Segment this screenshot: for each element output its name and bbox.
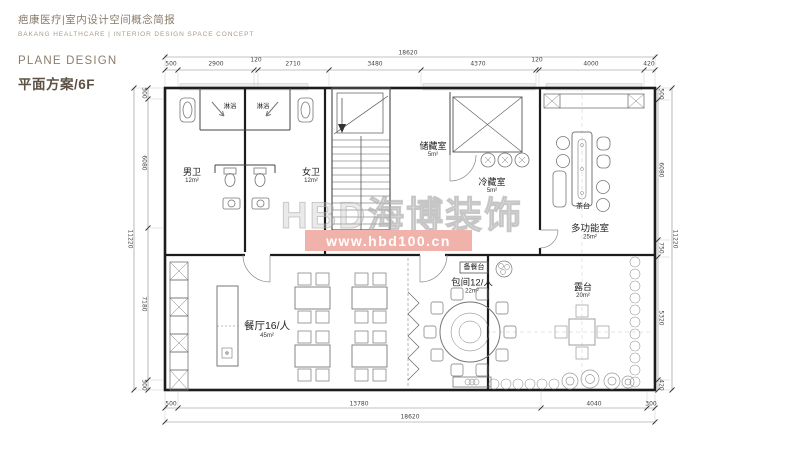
dim-left-seg: 500 — [141, 87, 148, 98]
dim-left-seg: 500 — [141, 379, 148, 390]
room-label-multifunction: 多功能室25m² — [571, 224, 609, 243]
dim-top-seg: 120 — [531, 57, 542, 64]
header-title-cn: 疤康医疗|室内设计空间概念简报 — [18, 12, 254, 27]
dim-right-total: 11220 — [672, 229, 679, 248]
dim-right-seg: 500 — [658, 88, 665, 99]
room-label-mens-wc: 男卫12m² — [183, 167, 201, 185]
dim-top-seg: 2710 — [285, 61, 300, 68]
room-label-dining: 餐厅16/人45m² — [244, 320, 290, 340]
terrace-furniture — [489, 257, 640, 389]
room-label-cold-storage: 冷藏室5m² — [478, 177, 505, 195]
dim-top-seg: 120 — [250, 57, 261, 64]
dim-top-seg: 2900 — [208, 61, 223, 68]
dim-top-seg: 4000 — [583, 61, 598, 68]
void-hatch — [453, 97, 522, 152]
room-label-serving-counter: 备餐台 — [464, 264, 485, 272]
dim-left-total: 11220 — [127, 229, 134, 248]
section-block: PLANE DESIGN 平面方案/6F — [18, 55, 117, 93]
dim-bottom-total: 18620 — [400, 414, 419, 421]
watermark-url: www.hbd100.cn — [326, 233, 451, 249]
equipment-circles — [481, 153, 529, 167]
dim-right-seg: 5320 — [658, 310, 665, 325]
room-label-private-dining: 包间12/人22m² — [451, 278, 493, 297]
room-label-womens-wc: 女卫12m² — [302, 167, 320, 185]
dim-left-seg: 6080 — [141, 155, 148, 170]
dim-top-seg: 420 — [643, 61, 654, 68]
room-label-storage: 储藏室5m² — [419, 141, 446, 159]
slide: 疤康医疗|室内设计空间概念简报 BAKANG HEALTHCARE | INTE… — [0, 0, 800, 450]
dim-top-seg: 500 — [165, 61, 176, 68]
dim-bottom-seg: 500 — [165, 401, 176, 408]
dim-right-seg: 750 — [658, 242, 665, 253]
dim-right-seg: 6080 — [658, 162, 665, 177]
multifunction-furniture — [544, 94, 644, 212]
section-eyebrow: PLANE DESIGN — [18, 55, 117, 67]
dim-top-seg: 3480 — [367, 61, 382, 68]
room-label-shower-left: 淋浴 — [224, 103, 237, 111]
dim-right-seg: 420 — [658, 379, 665, 390]
watermark-url-bar: www.hbd100.cn — [305, 230, 472, 251]
dim-bottom-seg: 13780 — [349, 401, 368, 408]
dim-bottom-seg: 4040 — [586, 401, 601, 408]
page-title: 平面方案/6F — [18, 73, 117, 93]
header-title-en: BAKANG HEALTHCARE | INTERIOR DESIGN SPAC… — [18, 31, 254, 38]
header: 疤康医疗|室内设计空间概念简报 BAKANG HEALTHCARE | INTE… — [18, 12, 254, 38]
room-label-tea-table: 茶台 — [576, 203, 590, 211]
dim-left-seg: 7180 — [141, 296, 148, 311]
dim-top-total: 18620 — [398, 50, 417, 57]
room-label-terrace: 露台20m² — [574, 282, 592, 300]
dim-top-seg: 4370 — [470, 61, 485, 68]
room-label-shower-right: 淋浴 — [257, 103, 270, 111]
dim-bottom-seg: 300 — [645, 401, 656, 408]
